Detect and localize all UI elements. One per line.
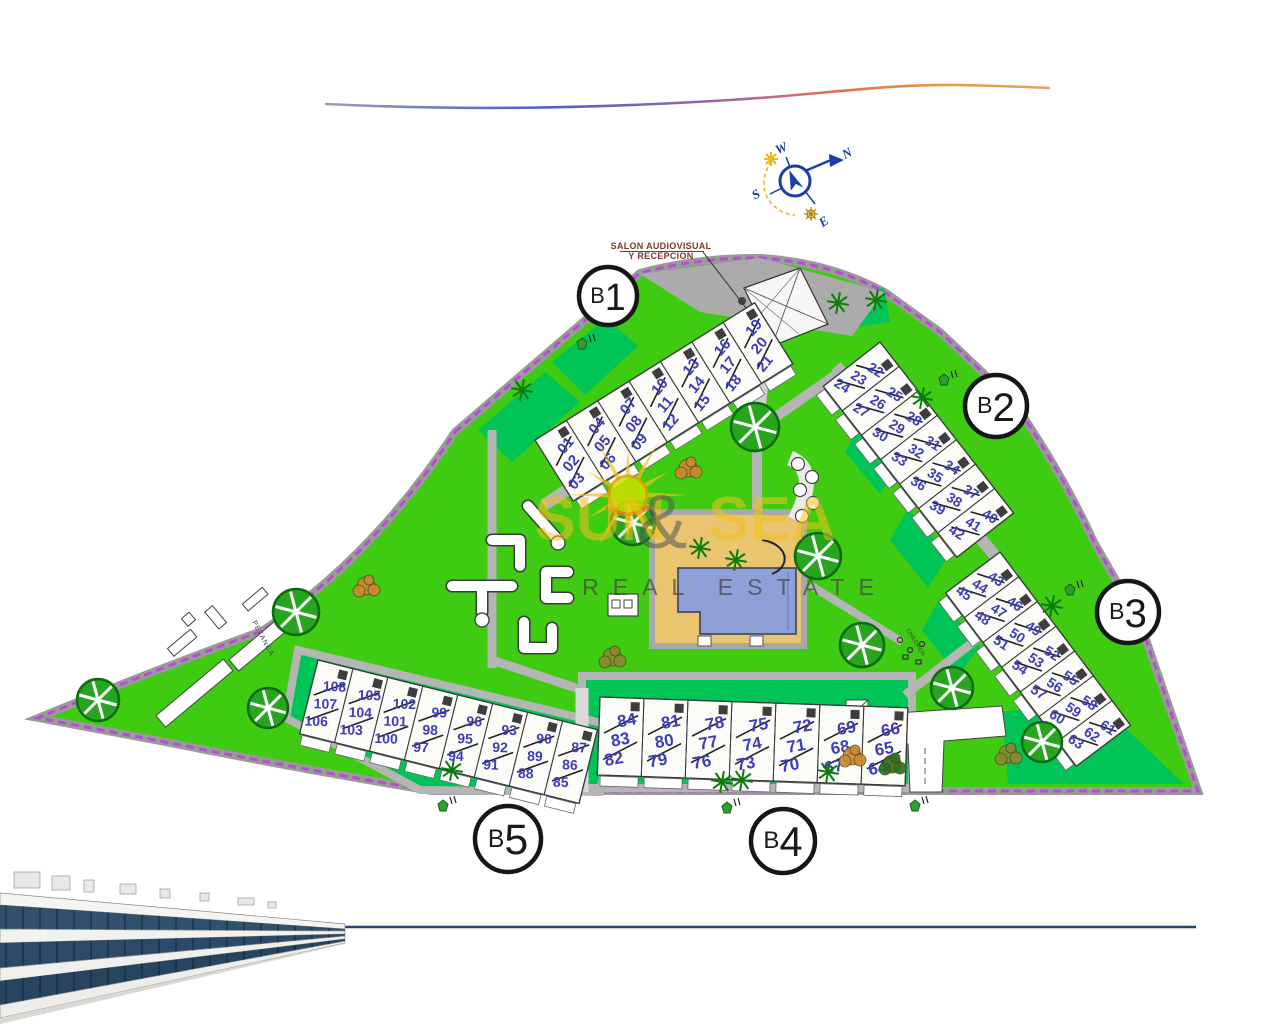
unit-number: 70: [779, 754, 801, 776]
unit-number: 76: [691, 751, 713, 773]
unit-number: 108: [323, 678, 347, 695]
tree-icon: [77, 679, 119, 721]
badge-b2: B2: [965, 375, 1027, 437]
terrace: [864, 785, 902, 796]
compass-label-e: E: [815, 212, 832, 230]
unit-number: 82: [603, 748, 625, 770]
access-marker-icon: [438, 796, 456, 811]
unit-number: 103: [339, 721, 363, 738]
badge-b4: B4: [751, 809, 815, 873]
compass-rose: N W S E: [749, 138, 855, 230]
unit-number: 85: [553, 774, 569, 791]
access-marker-icon: [722, 798, 740, 813]
tree-icon: [1022, 722, 1062, 762]
terrace: [644, 778, 682, 789]
badge-b1: B1: [579, 267, 637, 325]
watermark-ampersand: &: [637, 480, 688, 565]
unit-number: 87: [571, 739, 587, 756]
unit-number: 96: [466, 713, 482, 730]
unit-number: 92: [492, 739, 508, 756]
salon-label-line1: SALON AUDIOVISUAL: [611, 241, 712, 251]
tree-icon: [731, 403, 779, 451]
tree-icon: [840, 623, 884, 667]
unit-number: 98: [422, 721, 438, 738]
terrace: [600, 776, 638, 787]
unit-number: 104: [348, 704, 372, 721]
unit-number: 91: [483, 756, 499, 773]
unit-number: 97: [413, 739, 429, 756]
tree-icon: [248, 688, 288, 728]
site-plan-canvas: N W S E: [0, 0, 1280, 1024]
unit-number: 73: [735, 753, 757, 775]
unit-number: 90: [536, 730, 552, 747]
badge-b5: B5: [475, 806, 541, 872]
unit-number: 94: [448, 747, 464, 764]
tree-icon: [931, 667, 973, 709]
tree-icon: [273, 589, 319, 635]
access-marker-icon: [910, 796, 928, 811]
terrace: [776, 782, 814, 793]
unit-number: 100: [374, 730, 398, 747]
unit-number: 101: [383, 713, 407, 730]
unit-number: 89: [527, 748, 543, 765]
unit-number: 102: [392, 695, 416, 712]
unit-number: 105: [358, 687, 382, 704]
decor-wave: [326, 85, 1049, 108]
terrace: [820, 784, 858, 795]
unit-number: 95: [457, 730, 473, 747]
watermark-tagline: REAL ESTATE: [582, 574, 888, 600]
watermark-word2: SEA: [708, 485, 835, 554]
compass-label-s: S: [749, 186, 763, 203]
unit-number: 93: [501, 722, 517, 739]
building-render: [0, 872, 345, 1024]
plaza-tree-dot: [738, 297, 746, 305]
unit-number: 86: [562, 756, 578, 773]
site-plan-page: N W S E: [0, 0, 1280, 1024]
unit-number: 79: [647, 749, 669, 771]
unit-number: 88: [518, 765, 534, 782]
unit-number: 99: [431, 704, 447, 721]
unit-number: 106: [304, 713, 328, 730]
unit-number: 107: [313, 695, 337, 712]
badge-b3: B3: [1097, 581, 1159, 643]
sun-icon: [764, 152, 778, 166]
north-arrow: [829, 154, 844, 167]
